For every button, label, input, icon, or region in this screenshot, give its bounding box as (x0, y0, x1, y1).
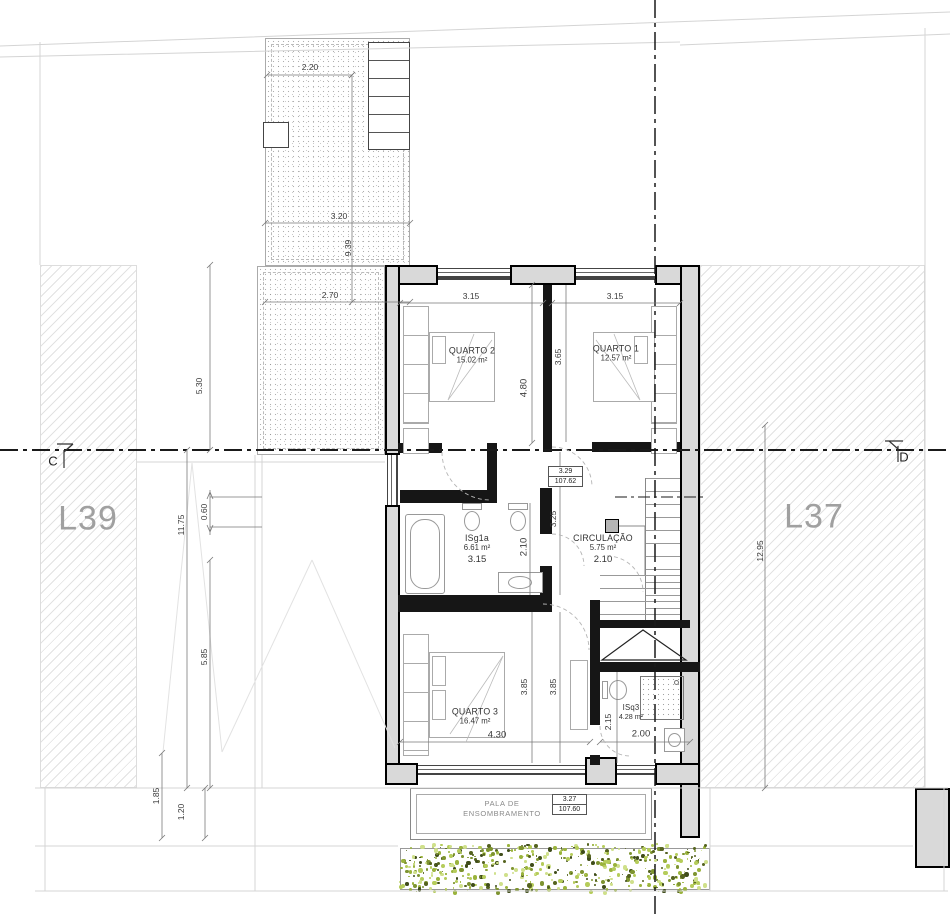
hedge-dot (674, 864, 675, 865)
pala-label: PALA DE ENSOMBRAMENTO (463, 799, 541, 819)
dim-isq3-height: 2.15 (603, 714, 613, 731)
hedge-dot (496, 891, 500, 895)
wall-left-upper (385, 265, 400, 455)
hedge-dot (665, 852, 668, 855)
duct-column (605, 519, 619, 533)
hedge-dot (644, 856, 648, 860)
hedge-dot (426, 868, 428, 870)
hedge-dot (575, 846, 579, 850)
hedge-dot (534, 873, 536, 875)
hedge-dot (676, 865, 680, 869)
pillow1-quarto3 (432, 656, 446, 686)
room-label-isq3: ISq3 4.28 m² (619, 703, 643, 721)
hedge-dot (510, 857, 513, 860)
level-upper-abs: 107.62 (549, 476, 582, 486)
hedge-dot (668, 875, 670, 877)
section-label-d: D (899, 450, 908, 465)
hedge-dot (409, 860, 410, 861)
hedge-dot (671, 876, 675, 880)
dim-q3-height2: 3.85 (548, 679, 558, 696)
hedge-dot (467, 873, 471, 877)
hedge-dot (612, 867, 616, 871)
hedge-dot (554, 871, 557, 874)
hedge-dot (551, 879, 553, 881)
hedge-dot (412, 855, 416, 859)
hedge-dot (701, 850, 703, 852)
hedge-dot (663, 871, 667, 875)
isq3-toilet-cistern (602, 681, 608, 699)
hedge-dot (687, 858, 688, 859)
side-table-quarto1 (651, 428, 677, 454)
dim-isq3-width: 2.00 (632, 729, 651, 740)
hedge-dot (440, 847, 441, 848)
hedge-dot (694, 861, 698, 865)
hedge-dot (445, 848, 447, 850)
wall-right (680, 265, 700, 838)
hedge-dot (464, 885, 467, 888)
hedge-dot (578, 856, 579, 857)
hedge-dot (408, 876, 410, 878)
hedge-dot (687, 849, 689, 851)
hedge (398, 843, 710, 895)
level-lower-abs: 107.60 (553, 804, 586, 814)
hedge-dot (401, 859, 405, 863)
hedge-dot (507, 889, 510, 892)
hedge-dot (639, 859, 642, 862)
hedge-dot (538, 848, 540, 850)
hedge-dot (559, 851, 563, 855)
hedge-dot (408, 866, 411, 869)
hedge-dot (693, 847, 696, 850)
hedge-dot (694, 850, 696, 852)
hedge-dot (561, 847, 563, 849)
wall-left-lower (385, 505, 400, 785)
hedge-dot (453, 853, 456, 856)
quarto2-area: 15.02 m² (449, 356, 495, 365)
hedge-dot (690, 884, 694, 888)
hedge-dot (496, 888, 498, 890)
hedge-dot (675, 876, 677, 878)
hedge-dot (512, 872, 515, 875)
pala-line1: PALA DE (463, 799, 541, 809)
pillow2-quarto3 (432, 690, 446, 720)
hedge-dot (431, 872, 433, 874)
window-left (387, 455, 398, 505)
dim-roof-h: 9.39 (343, 240, 353, 257)
hedge-dot (530, 863, 534, 867)
hedge-dot (437, 882, 440, 885)
hedge-dot (682, 882, 684, 884)
quarto2-name: QUARTO 2 (449, 346, 495, 356)
hedge-dot (693, 872, 697, 876)
hedge-dot (614, 847, 616, 849)
dim-q2-width: 3.15 (463, 291, 480, 301)
hedge-dot (546, 852, 550, 856)
hedge-dot (697, 868, 701, 872)
hedge-dot (470, 857, 473, 860)
hedge-dot (436, 877, 440, 881)
dim-yard-f: 1.20 (176, 804, 186, 821)
hedge-dot (560, 850, 562, 852)
hedge-dot (401, 884, 405, 888)
dim-q1-height: 3.65 (553, 349, 563, 366)
stairs-triangle (602, 630, 686, 660)
hedge-dot (625, 848, 626, 849)
hedge-dot (591, 879, 593, 881)
quarto3-area: 16.47 m² (452, 717, 498, 726)
hedge-dot (462, 875, 464, 877)
desk-quarto3 (570, 660, 588, 730)
hedge-dot (651, 844, 654, 847)
hedge-dot (499, 853, 503, 857)
hedge-dot (486, 883, 490, 887)
hedge-dot (434, 848, 439, 853)
hedge-dot (601, 858, 604, 861)
hedge-dot (567, 880, 569, 882)
hedge-dot (642, 880, 644, 882)
hedge-dot (661, 867, 663, 869)
hedge-dot (479, 886, 483, 890)
hedge-dot (679, 888, 681, 890)
hedge-dot (633, 874, 636, 877)
room-label-quarto3: QUARTO 3 16.47 m² (452, 707, 498, 726)
hedge-dot (431, 874, 434, 877)
dim-q2-height: 4.80 (519, 379, 530, 398)
hedge-dot (432, 881, 437, 886)
hedge-dot (509, 879, 511, 881)
hedge-dot (469, 877, 472, 880)
hedge-dot (522, 888, 524, 890)
hedge-dot (480, 854, 483, 857)
bathtub-inner (410, 519, 440, 589)
hedge-dot (526, 875, 527, 876)
hedge-dot (532, 853, 534, 855)
toilet-bowl (464, 511, 480, 531)
hedge-dot (535, 889, 538, 892)
hedge-dot (442, 856, 446, 860)
hedge-dot (491, 859, 494, 862)
hedge-dot (587, 865, 589, 867)
hedge-dot (471, 883, 475, 887)
wall-bath-top (400, 490, 487, 503)
hedge-dot (567, 874, 569, 876)
hedge-dot (509, 850, 511, 852)
hedge-dot (484, 864, 488, 868)
isq3-area: 4.28 m² (619, 712, 643, 721)
hedge-dot (445, 873, 446, 874)
hedge-dot (429, 887, 431, 889)
isg1a-area: 6.61 m² (464, 543, 490, 552)
hedge-dot (682, 853, 685, 856)
hedge-dot (669, 855, 673, 859)
window-quarto1 (576, 268, 655, 280)
roof-hatch-box (263, 122, 289, 148)
hedge-dot (639, 884, 642, 887)
hedge-dot (405, 882, 409, 886)
hedge-dot (696, 881, 700, 885)
hedge-dot (654, 859, 657, 862)
hedge-dot (553, 846, 557, 850)
dim-yard-c: 0.60 (199, 504, 209, 521)
hedge-dot (424, 882, 428, 886)
dim-q1-width: 3.15 (607, 291, 624, 301)
hedge-dot (687, 868, 690, 871)
hedge-dot (704, 860, 708, 864)
wall-hall-stub (487, 443, 497, 503)
hedge-dot (703, 883, 708, 888)
hedge-dot (539, 868, 542, 871)
hedge-dot (491, 852, 495, 856)
wall-bottom-right (655, 763, 700, 785)
hedge-dot (465, 864, 469, 868)
level-marker-upper: 3.29 107.62 (548, 466, 583, 487)
hedge-dot (647, 854, 649, 856)
hedge-dot (472, 868, 474, 870)
hedge-dot (536, 858, 540, 862)
hedge-dot (618, 848, 620, 850)
hedge-dot (679, 890, 683, 894)
hedge-dot (648, 876, 652, 880)
hedge-dot (563, 886, 567, 890)
hedge-dot (623, 865, 628, 870)
hedge-dot (606, 889, 608, 891)
hedge-dot (601, 880, 605, 884)
room-label-quarto1: QUARTO 1 12.57 m² (593, 344, 639, 363)
hedge-dot (445, 888, 447, 890)
hedge-dot (586, 878, 588, 880)
hedge-dot (413, 875, 415, 877)
hedge-dot (697, 886, 701, 890)
hedge-dot (523, 856, 524, 857)
hedge-dot (511, 867, 514, 870)
hedge-dot (453, 890, 457, 894)
hedge-dot (563, 857, 565, 859)
hedge-dot (566, 857, 570, 861)
hedge-dot (694, 855, 696, 857)
hedge-dot (496, 862, 498, 864)
hedge-dot (610, 883, 613, 886)
wall-top-mid (510, 265, 576, 285)
hedge-dot (535, 862, 536, 863)
hedge-dot (699, 858, 700, 859)
hedge-dot (453, 869, 457, 873)
hedge-dot (410, 847, 412, 849)
hedge-dot (666, 864, 670, 868)
hedge-dot (662, 883, 665, 886)
hedge-dot (617, 873, 621, 877)
hedge-dot (486, 848, 490, 852)
hedge-dot (475, 860, 478, 863)
isq3-toilet-bowl (609, 680, 627, 700)
hedge-dot (665, 844, 669, 848)
hedge-dot (507, 844, 510, 847)
hedge-dot (459, 884, 463, 888)
hedge-dot (558, 879, 563, 884)
hedge-dot (467, 877, 469, 879)
hedge-dot (644, 859, 647, 862)
hedge-dot (575, 881, 578, 884)
hedge-dot (585, 882, 590, 887)
hedge-dot (540, 881, 544, 885)
hedge-dot (524, 860, 526, 862)
hedge-dot (677, 882, 681, 886)
hedge-dot (472, 845, 474, 847)
hedge-dot (419, 857, 421, 859)
hedge-dot (527, 883, 531, 887)
hedge-dot (628, 885, 630, 887)
hedge-dot (670, 881, 672, 883)
hedge-dot (409, 888, 412, 891)
dim-yard-b: 11.75 (176, 515, 186, 536)
hedge-dot (519, 846, 524, 851)
quarto1-name: QUARTO 1 (593, 344, 639, 354)
hedge-dot (610, 878, 613, 881)
hedge-dot (649, 859, 651, 861)
hedge-dot (473, 875, 477, 879)
circulacao-name: CIRCULAÇÃO (573, 533, 633, 543)
hedge-dot (409, 870, 412, 873)
hedge-dot (499, 882, 503, 886)
hedge-dot (657, 880, 661, 884)
hedge-dot (459, 868, 464, 873)
hedge-dot (603, 865, 606, 868)
hedge-dot (525, 889, 529, 893)
hedge-dot (488, 862, 489, 863)
hedge-dot (629, 889, 632, 892)
hedge-dot (399, 881, 401, 883)
hedge-dot (456, 877, 459, 880)
hedge-dot (622, 874, 624, 876)
dim-roof-w2: 3.20 (331, 211, 348, 221)
room-label-isg1a: ISg1a 6.61 m² 3.15 (464, 533, 490, 565)
isq3-sink-basin (668, 733, 681, 747)
hedge-dot (455, 860, 460, 865)
hedge-dot (616, 860, 617, 861)
hedge-dot (684, 872, 688, 876)
hedge-dot (419, 865, 421, 867)
hedge-dot (441, 864, 445, 868)
wall-bath-bottom (398, 595, 540, 612)
hedge-dot (587, 843, 590, 846)
wall-q2-q1-divider (543, 285, 552, 452)
quarto1-area: 12.57 m² (593, 354, 639, 363)
hedge-dot (429, 877, 431, 879)
room-label-quarto2: QUARTO 2 15.02 m² (449, 346, 495, 365)
hedge-dot (419, 861, 422, 864)
hedge-dot (444, 877, 447, 880)
hedge-dot (543, 855, 547, 859)
quarto3-name: QUARTO 3 (452, 707, 498, 717)
hedge-dot (413, 871, 416, 874)
hedge-dot (575, 875, 579, 879)
hedge-dot (482, 875, 486, 879)
hedge-dot (528, 855, 531, 858)
bidet-cistern (508, 503, 528, 510)
hedge-dot (463, 845, 467, 849)
hedge-dot (597, 858, 598, 859)
hedge-dot (633, 849, 635, 851)
isg1a-width-dim: 3.15 (464, 554, 490, 565)
hedge-dot (514, 849, 516, 851)
hedge-dot (524, 847, 526, 849)
hedge-dot (591, 861, 595, 865)
hedge-dot (652, 850, 655, 853)
lot-label-l39: L39 (58, 500, 118, 539)
hedge-dot (467, 890, 469, 892)
window-isq3 (617, 765, 655, 775)
vanity-sink (508, 576, 532, 589)
hedge-dot (680, 878, 682, 880)
hedge-dot (598, 877, 600, 879)
wall-bottom-left-pier (385, 763, 418, 785)
hedge-dot (673, 884, 675, 886)
hedge-dot (449, 845, 452, 848)
hedge-dot (690, 865, 692, 867)
hedge-dot (525, 880, 527, 882)
hedge-dot (656, 843, 658, 845)
hedge-dot (654, 866, 655, 867)
wardrobe-quarto2 (403, 306, 429, 424)
hedge-dot (594, 884, 596, 886)
hedge-dot (467, 857, 468, 858)
hedge-dot (645, 868, 646, 869)
dim-yard-d: 5.85 (199, 649, 209, 666)
hedge-dot (635, 860, 639, 864)
hedge-dot (514, 868, 518, 872)
hedge-dot (400, 867, 403, 870)
hedge-dot (690, 860, 692, 862)
wall-terrace-pier (915, 788, 950, 868)
dim-yard-e: 1.85 (151, 788, 161, 805)
floor-plan: L39 L37 (0, 0, 950, 917)
hedge-dot (422, 886, 424, 888)
hedge-dot (548, 874, 550, 876)
wall-isq3-top (590, 662, 700, 672)
level-marker-lower: 3.27 107.60 (552, 794, 587, 815)
toilet-cistern (462, 503, 482, 510)
hedge-dot (437, 862, 440, 865)
hedge-dot (636, 870, 637, 871)
hedge-dot (429, 862, 432, 865)
hedge-dot (679, 859, 683, 863)
hedge-dot (557, 887, 560, 890)
hedge-dot (592, 844, 593, 845)
hedge-dot (417, 874, 420, 877)
hedge-dot (573, 847, 574, 848)
hedge-dot (580, 864, 582, 866)
hedge-dot (479, 876, 481, 878)
dim-roof-w1: 2.20 (302, 62, 319, 72)
hedge-dot (611, 848, 615, 852)
hedge-dot (432, 868, 437, 873)
pala-line2: ENSOMBRAMENTO (463, 809, 541, 819)
hedge-dot (557, 869, 559, 871)
roof-stair-ladder (368, 42, 410, 150)
dim-yard-a: 5.30 (194, 378, 204, 395)
stairs-lower-flight (600, 575, 680, 620)
isq3-shower-head (674, 680, 679, 685)
hedge-dot (581, 850, 585, 854)
hedge-dot (631, 858, 633, 860)
wall-stair-landing (600, 620, 690, 628)
hedge-dot (541, 862, 545, 866)
room-label-circulacao: CIRCULAÇÃO 5.75 m² 2.10 (573, 533, 633, 565)
circulacao-area: 5.75 m² (573, 543, 633, 552)
hedge-dot (683, 887, 687, 891)
hedge-dot (531, 889, 533, 891)
hedge-dot (414, 861, 416, 863)
wall-q3-isq3-stub (590, 755, 600, 765)
